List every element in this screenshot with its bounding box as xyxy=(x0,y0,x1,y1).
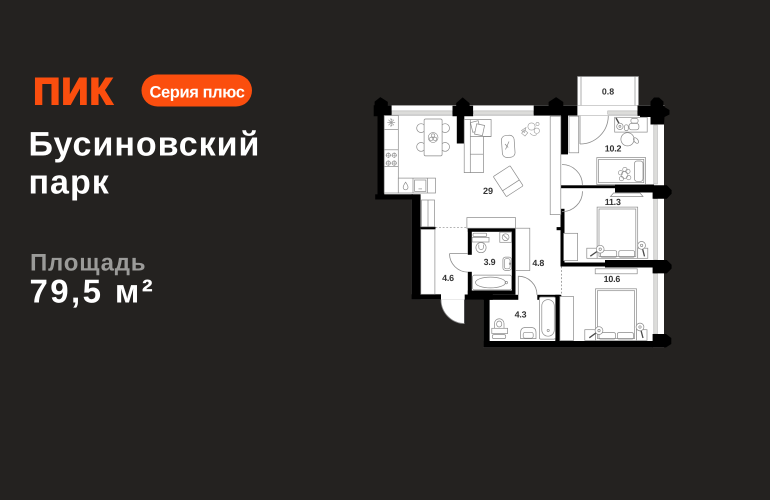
svg-text:79,5 м²: 79,5 м² xyxy=(30,273,156,310)
svg-text:Серия плюс: Серия плюс xyxy=(149,84,244,102)
svg-text:3.9: 3.9 xyxy=(484,257,496,267)
svg-text:11.3: 11.3 xyxy=(605,197,621,207)
svg-text:10.2: 10.2 xyxy=(605,144,622,154)
svg-text:ПИК: ПИК xyxy=(34,71,114,112)
svg-text:парк: парк xyxy=(29,164,110,202)
svg-text:Бусиновский: Бусиновский xyxy=(29,126,261,164)
svg-text:4.6: 4.6 xyxy=(442,273,454,283)
svg-text:4.3: 4.3 xyxy=(515,310,527,320)
svg-text:4.8: 4.8 xyxy=(532,258,544,268)
svg-text:29: 29 xyxy=(483,186,493,196)
svg-text:0.8: 0.8 xyxy=(602,87,614,97)
svg-text:10.6: 10.6 xyxy=(604,274,621,284)
